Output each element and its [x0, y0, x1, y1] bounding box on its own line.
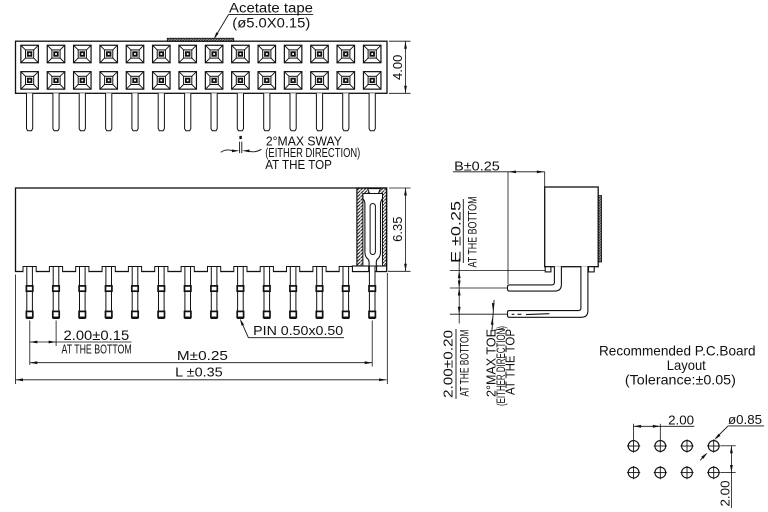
svg-text:2.00±0.20: 2.00±0.20: [441, 330, 456, 398]
svg-text:6.35: 6.35: [390, 217, 405, 242]
svg-text:(ø5.0X0.15): (ø5.0X0.15): [232, 16, 310, 31]
svg-text:Layout: Layout: [667, 357, 706, 373]
svg-text:AT THE BOTTOM: AT THE BOTTOM: [458, 330, 472, 397]
svg-text:2.00±0.15: 2.00±0.15: [64, 328, 130, 343]
svg-text:AT THE TOP: AT THE TOP: [504, 329, 518, 395]
svg-text:M±0.25: M±0.25: [177, 348, 228, 363]
svg-text:4.00: 4.00: [390, 55, 405, 80]
svg-text:PIN 0.50x0.50: PIN 0.50x0.50: [253, 323, 343, 338]
svg-text:L ±0.35: L ±0.35: [175, 365, 223, 380]
svg-text:E ±0.25: E ±0.25: [449, 201, 464, 263]
svg-text:AT THE BOTTOM: AT THE BOTTOM: [466, 197, 480, 268]
svg-text:2.00: 2.00: [668, 412, 694, 427]
svg-text:(Tolerance:±0.05): (Tolerance:±0.05): [625, 371, 736, 387]
svg-text:Acetate tape: Acetate tape: [229, 0, 313, 15]
svg-text:2.00: 2.00: [718, 481, 733, 507]
svg-text:ø0.85: ø0.85: [728, 412, 762, 427]
svg-text:AT THE TOP: AT THE TOP: [265, 157, 332, 172]
svg-text:B±0.25: B±0.25: [454, 158, 500, 173]
svg-text:AT THE BOTTOM: AT THE BOTTOM: [62, 343, 132, 357]
